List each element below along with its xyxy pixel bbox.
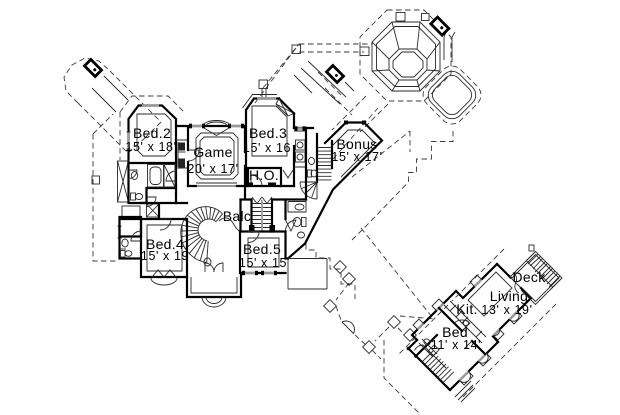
svg-text:Living: Living <box>490 288 528 304</box>
svg-text:15' x 18': 15' x 18' <box>125 140 176 154</box>
svg-text:15' x 15: 15' x 15 <box>239 256 287 270</box>
svg-text:Kit.: Kit. <box>456 301 477 317</box>
svg-text:20' x 17': 20' x 17' <box>187 162 238 176</box>
svg-text:11' x 14': 11' x 14' <box>431 338 481 352</box>
svg-text:15' x 16: 15' x 16 <box>243 141 291 155</box>
svg-text:Deck: Deck <box>512 269 546 285</box>
svg-text:H.O.: H.O. <box>249 167 279 183</box>
svg-text:Bed.2: Bed.2 <box>133 125 171 141</box>
svg-text:13' x 19': 13' x 19' <box>481 303 532 317</box>
svg-text:Balc: Balc <box>223 208 251 224</box>
svg-text:Bed.3: Bed.3 <box>249 125 287 141</box>
svg-text:15' x 19: 15' x 19 <box>141 249 189 263</box>
svg-text:15' x 17': 15' x 17' <box>331 150 382 164</box>
svg-text:Bed.5: Bed.5 <box>243 241 281 257</box>
